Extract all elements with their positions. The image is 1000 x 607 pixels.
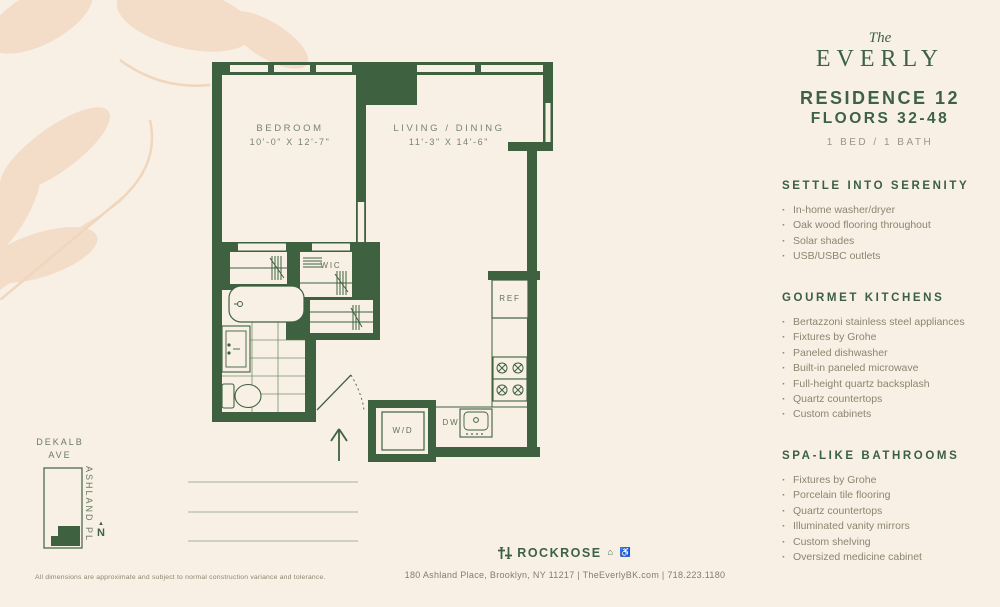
- list-item: Oak wood flooring throughout: [782, 218, 997, 233]
- list-item: Quartz countertops: [782, 392, 997, 407]
- residence-title: RESIDENCE 12: [770, 88, 990, 109]
- entry-arrow-icon: [331, 429, 347, 461]
- list-item: Built-in paneled microwave: [782, 361, 997, 376]
- section-settle-into-serenity: SETTLE INTO SERENITY In-home washer/drye…: [782, 180, 997, 265]
- list-item: Custom shelving: [782, 535, 997, 550]
- vanity-sink: [222, 326, 250, 372]
- wd-label: W/D: [387, 426, 419, 435]
- wic-label: WIC: [312, 261, 350, 270]
- rockrose-logo-icon: [497, 546, 513, 560]
- list-item: Solar shades: [782, 234, 997, 249]
- bathtub: [229, 286, 304, 322]
- stove-lower: [493, 379, 527, 401]
- list-item: Bertazzoni stainless steel appliances: [782, 315, 997, 330]
- section-title: GOURMET KITCHENS: [782, 292, 997, 304]
- bedroom-label: BEDROOM 10'-0" X 12'-7": [230, 123, 350, 147]
- floors-subtitle: FLOORS 32-48: [770, 110, 990, 128]
- plan-openings: [230, 244, 428, 455]
- street-label-line: DEKALB: [24, 436, 96, 449]
- feature-list: Fixtures by Grohe Porcelain tile floorin…: [782, 473, 997, 565]
- toilet: [222, 384, 261, 408]
- list-item: Fixtures by Grohe: [782, 473, 997, 488]
- list-item: Quartz countertops: [782, 504, 997, 519]
- feature-list: In-home washer/dryer Oak wood flooring t…: [782, 203, 997, 265]
- street-label-line: AVE: [24, 449, 96, 462]
- list-item: Porcelain tile flooring: [782, 488, 997, 503]
- list-item: USB/USBC outlets: [782, 249, 997, 264]
- section-gourmet-kitchens: GOURMET KITCHENS Bertazzoni stainless st…: [782, 292, 997, 423]
- north-compass: ▲ N: [92, 521, 110, 539]
- list-item: Full-height quartz backsplash: [782, 377, 997, 392]
- section-title: SETTLE INTO SERENITY: [782, 180, 997, 192]
- blank-note-lines: [188, 482, 358, 541]
- ref-label: REF: [493, 294, 527, 303]
- bed-bath-line: 1 BED / 1 BATH: [770, 137, 990, 148]
- contact-address-line: 180 Ashland Place, Brooklyn, NY 11217 | …: [330, 570, 800, 580]
- living-dining-dimensions: 11'-3" X 14'-6": [390, 137, 508, 147]
- dimensions-disclaimer: All dimensions are approximate and subje…: [35, 574, 326, 581]
- list-item: Paneled dishwasher: [782, 346, 997, 361]
- list-item: Fixtures by Grohe: [782, 330, 997, 345]
- living-dining-name: LIVING / DINING: [390, 123, 508, 134]
- list-item: Illuminated vanity mirrors: [782, 519, 997, 534]
- section-spa-like-bathrooms: SPA-LIKE BATHROOMS Fixtures by Grohe Por…: [782, 450, 997, 565]
- stove-upper: [493, 357, 527, 379]
- street-label-dekalb: DEKALB AVE: [24, 436, 96, 462]
- developer-brand-line: ROCKROSE⌂ ♿: [400, 544, 730, 562]
- unit-location-marker: [58, 526, 80, 546]
- floorplan-flyer-page: { "branding": { "script_word": "The", "n…: [0, 0, 1000, 607]
- dw-label: DW: [438, 418, 464, 427]
- section-title: SPA-LIKE BATHROOMS: [782, 450, 997, 462]
- bedroom-name: BEDROOM: [230, 123, 350, 134]
- bedroom-dimensions: 10'-0" X 12'-7": [230, 137, 350, 147]
- list-item: Oversized medicine cabinet: [782, 550, 997, 565]
- entry-door: [317, 375, 364, 410]
- brand-logo: EVERLY: [770, 46, 990, 73]
- feature-list: Bertazzoni stainless steel appliances Fi…: [782, 315, 997, 423]
- living-dining-label: LIVING / DINING 11'-3" X 14'-6": [390, 123, 508, 147]
- equal-housing-accessibility-icons: ⌂ ♿: [608, 547, 633, 557]
- street-label-ashland: ASHLAND PL: [84, 466, 94, 552]
- list-item: Custom cabinets: [782, 407, 997, 422]
- developer-name: ROCKROSE: [517, 546, 601, 560]
- brand-script-word: The: [770, 30, 990, 47]
- list-item: In-home washer/dryer: [782, 203, 997, 218]
- location-key-map: [40, 464, 110, 556]
- north-letter: N: [92, 527, 110, 539]
